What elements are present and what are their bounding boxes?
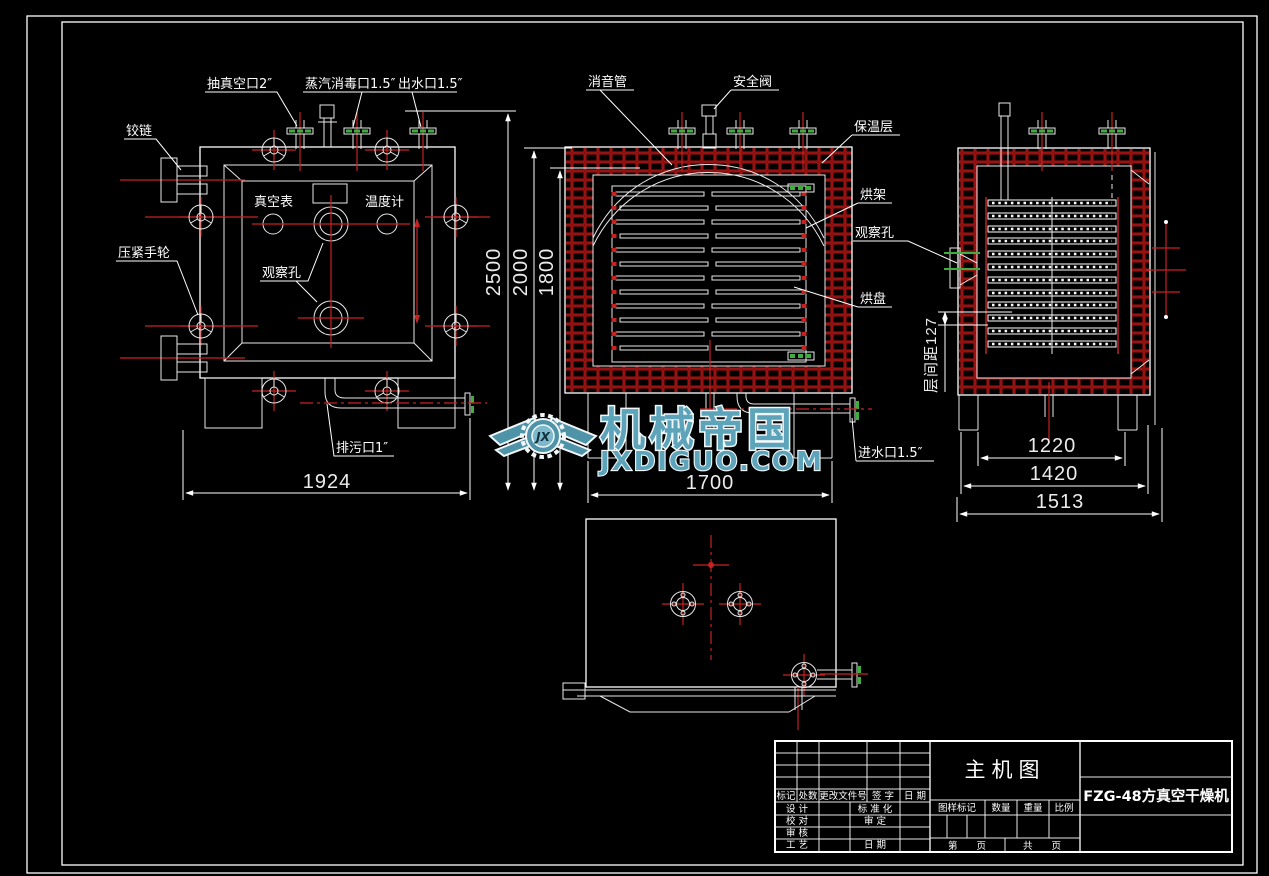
svg-text:1924: 1924 (303, 471, 352, 493)
steam-stack (318, 105, 337, 147)
bottom-flange (719, 583, 761, 625)
tb-design: 设 计 (786, 803, 809, 815)
drawing-svg: 抽真空口2″ 蒸汽消毒口1.5″ 出水口1.5″ 铰链 压紧手轮 真空表 温度计… (0, 0, 1269, 876)
label-clamp-handwheel: 压紧手轮 (118, 246, 170, 261)
tb-change-doc: 更改文件号 (819, 790, 867, 802)
bottom-view (563, 519, 868, 730)
bottom-drain (795, 687, 802, 730)
tb-total-page: 共 页 (1023, 841, 1061, 852)
watermark-site: JXDIGUO.COM (598, 447, 824, 477)
front-leg-left (205, 378, 262, 428)
insulation-right (825, 148, 852, 392)
label-insulation-layer: 保温层 (854, 120, 893, 135)
tray-stack (986, 197, 1118, 354)
label-muffler: 消音管 (588, 74, 627, 90)
outlet-nozzle (410, 112, 436, 171)
tb-approve: 审 定 (864, 815, 887, 827)
label-drying-rack: 烘架 (860, 188, 886, 203)
dim-front-width: 1924 (183, 418, 470, 500)
hinge-axis (1146, 220, 1186, 319)
label-water-outlet: 出水口1.5″ (398, 77, 463, 92)
label-vacuum-port: 抽真空口2″ (207, 77, 272, 92)
clamp-wheel (434, 197, 478, 237)
tb-count: 处数 (798, 790, 818, 802)
watermark-logo: JX (490, 415, 596, 457)
label-drain-port: 排污口1″ (336, 441, 388, 456)
tb-role-date: 日 期 (864, 840, 886, 851)
bottom-flange (662, 583, 704, 625)
label-observation-hole-side: 观察孔 (855, 226, 894, 241)
safety-valve (702, 105, 716, 148)
tb-scale: 比例 (1054, 802, 1073, 814)
side-flange-upper (788, 184, 814, 192)
tb-process: 工 艺 (786, 840, 808, 851)
svg-text:1420: 1420 (1030, 463, 1079, 485)
label-vacuum-gauge: 真空表 (254, 195, 293, 210)
clamp-wheel (365, 130, 409, 170)
svg-text:1513: 1513 (1036, 491, 1085, 513)
part-name: FZG-48方真空干燥机 (1083, 787, 1229, 805)
svg-text:层间距127: 层间距127 (923, 317, 940, 393)
name-plate (313, 184, 347, 203)
tb-weight: 重量 (1023, 802, 1043, 814)
svg-text:2000: 2000 (510, 248, 532, 297)
side-view: 层间距127 1220 1420 1513 (923, 103, 1186, 522)
tb-drawing-mark: 图样标记 (938, 802, 977, 814)
clamp-wheel (179, 306, 223, 346)
cad-drawing-canvas: 抽真空口2″ 蒸汽消毒口1.5″ 出水口1.5″ 铰链 压紧手轮 真空表 温度计… (0, 0, 1269, 876)
clamp-wheel (365, 371, 409, 411)
insulation-bottom (566, 366, 851, 392)
watermark: JX 机械帝国 JXDIGUO.COM (490, 403, 824, 477)
tb-date: 日 期 (904, 791, 926, 802)
tb-sheet-page: 第 页 (948, 840, 986, 852)
tb-mark: 标记 (776, 790, 796, 802)
clamp-wheel (252, 371, 296, 411)
tb-proofread: 校 对 (786, 815, 809, 827)
vacuum-nozzle (287, 112, 313, 171)
label-observation-hole: 观察孔 (262, 266, 301, 281)
tb-standardization: 标 准 化 (858, 803, 893, 815)
label-drying-tray: 烘盘 (860, 291, 886, 307)
clamp-wheel (179, 197, 223, 237)
tb-review: 审 核 (786, 827, 809, 839)
insulation-left (566, 148, 593, 392)
steam-nozzle (344, 112, 370, 171)
label-thermometer: 温度计 (365, 194, 404, 210)
svg-text:1800: 1800 (536, 248, 558, 297)
title-block: 标记 处数 更改文件号 签 字 日 期 设 计 标 准 化 校 对 审 定 审 … (775, 741, 1232, 852)
label-steam-port: 蒸汽消毒口1.5″ (305, 77, 396, 92)
svg-text:2500: 2500 (483, 248, 505, 297)
clamp-wheel (252, 130, 296, 170)
label-water-inlet: 进水口1.5″ (858, 446, 923, 461)
svg-text:1220: 1220 (1028, 435, 1077, 457)
drawing-title: 主机图 (965, 758, 1046, 782)
tb-quantity: 数量 (991, 802, 1011, 814)
side-flange-lower (788, 352, 814, 360)
clamp-wheel (434, 306, 478, 346)
front-view: 抽真空口2″ 蒸汽消毒口1.5″ 出水口1.5″ 铰链 压紧手轮 真空表 温度计… (116, 77, 490, 500)
dim-rack-width: 1220 (978, 432, 1125, 466)
insulation-top (566, 148, 851, 175)
tray-rack (612, 186, 806, 362)
label-safety-valve: 安全阀 (733, 74, 772, 90)
tb-signature: 签 字 (872, 790, 894, 802)
watermark-monogram: JX (534, 430, 550, 444)
label-hinge: 铰链 (126, 124, 152, 139)
